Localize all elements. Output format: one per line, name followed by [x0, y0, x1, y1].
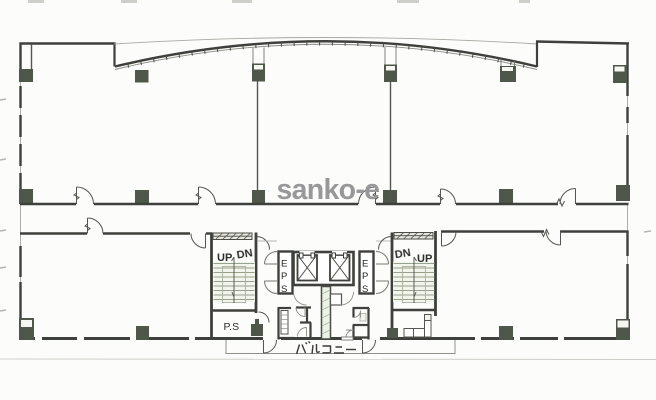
svg-text:DN: DN — [236, 247, 254, 261]
svg-text:DN: DN — [394, 247, 412, 261]
svg-text:E: E — [281, 259, 287, 270]
svg-text:E: E — [362, 259, 368, 270]
svg-text:UP: UP — [217, 252, 232, 264]
svg-text:UP: UP — [417, 253, 432, 265]
svg-text:P: P — [281, 271, 287, 282]
svg-text:sanko-e: sanko-e — [277, 174, 380, 206]
svg-text:P.S: P.S — [224, 321, 240, 333]
svg-text:S: S — [281, 284, 287, 295]
svg-text:P: P — [362, 271, 368, 282]
svg-text:S: S — [362, 284, 368, 295]
